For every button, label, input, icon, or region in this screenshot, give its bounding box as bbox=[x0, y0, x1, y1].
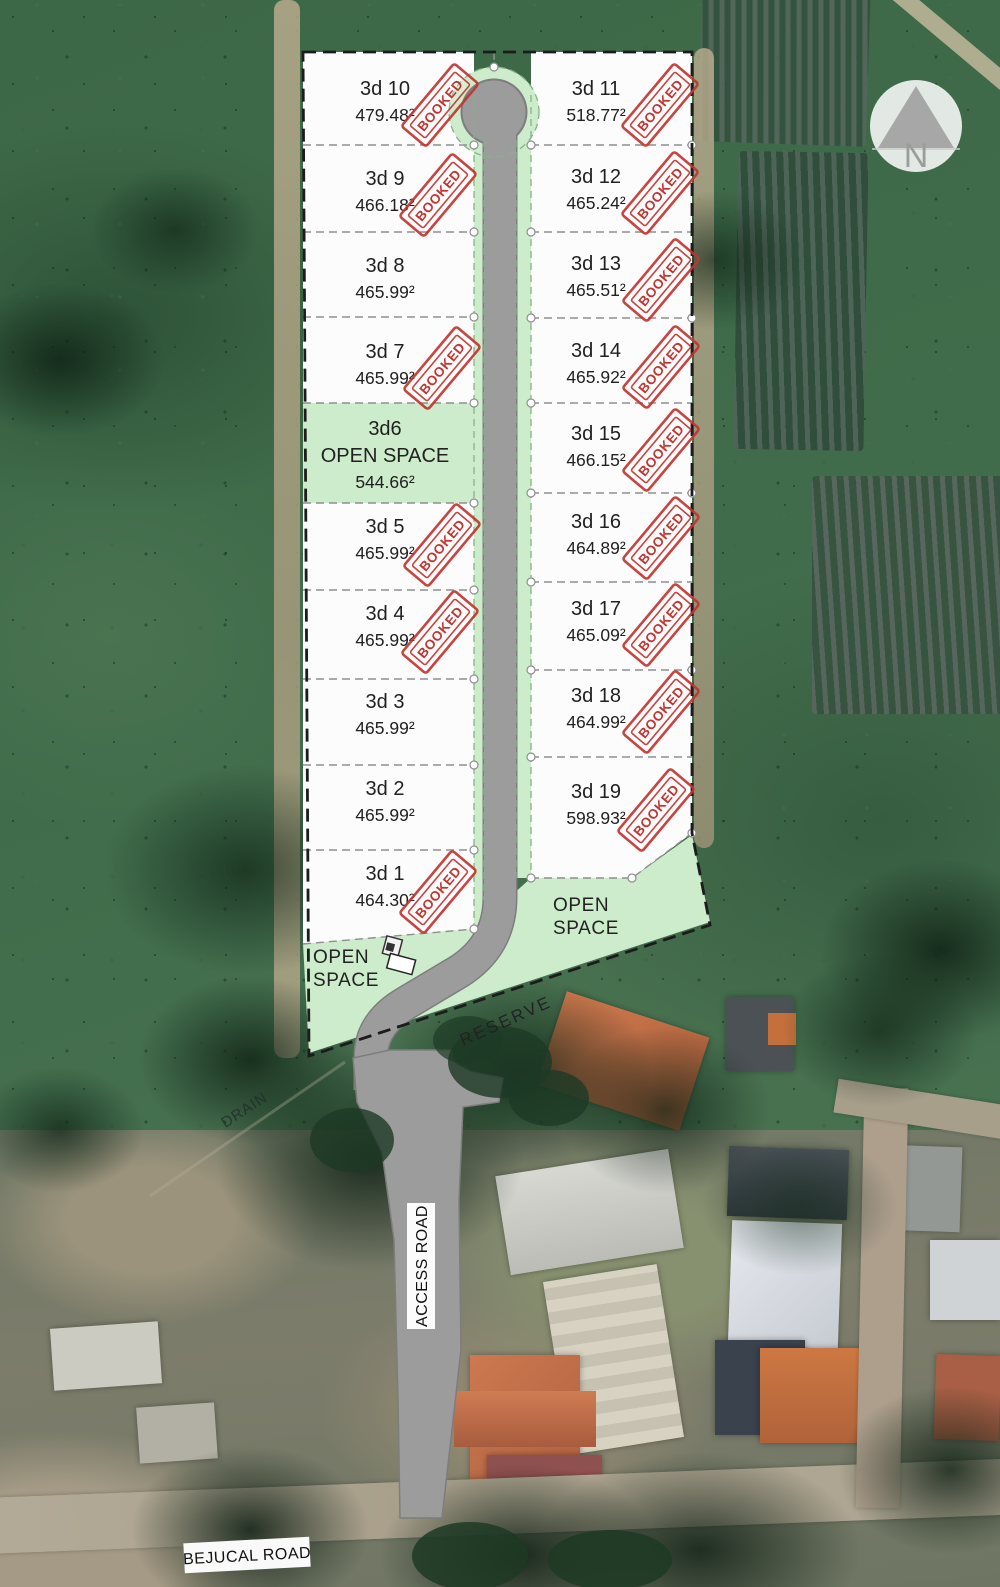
svg-text:3d 16: 3d 16 bbox=[571, 511, 621, 533]
svg-text:3d 7: 3d 7 bbox=[366, 341, 405, 363]
access-road-label: ACCESS ROAD bbox=[407, 1203, 435, 1329]
svg-text:464.89²: 464.89² bbox=[566, 538, 626, 558]
svg-text:465.99²: 465.99² bbox=[355, 718, 415, 738]
svg-text:3d 12: 3d 12 bbox=[571, 166, 621, 188]
svg-text:3d 18: 3d 18 bbox=[571, 685, 621, 707]
svg-text:544.66²: 544.66² bbox=[355, 472, 415, 492]
svg-text:3d6: 3d6 bbox=[368, 418, 401, 440]
svg-text:465.09²: 465.09² bbox=[566, 625, 626, 645]
svg-text:3d 11: 3d 11 bbox=[572, 78, 621, 100]
svg-text:598.93²: 598.93² bbox=[566, 808, 626, 828]
svg-text:3d 14: 3d 14 bbox=[571, 340, 621, 362]
drain-label: DRAIN bbox=[218, 1089, 271, 1131]
svg-text:3d 4: 3d 4 bbox=[366, 603, 405, 625]
svg-text:OPEN: OPEN bbox=[553, 895, 609, 916]
svg-text:SPACE: SPACE bbox=[553, 918, 619, 939]
svg-text:466.18²: 466.18² bbox=[355, 195, 415, 215]
svg-text:3d 19: 3d 19 bbox=[571, 781, 621, 803]
svg-text:3d 8: 3d 8 bbox=[366, 255, 405, 277]
north-compass: N bbox=[870, 80, 962, 175]
svg-text:3d 2: 3d 2 bbox=[366, 778, 405, 800]
compass-n-label: N bbox=[904, 137, 929, 175]
svg-text:OPEN SPACE: OPEN SPACE bbox=[321, 445, 450, 467]
svg-text:465.99²: 465.99² bbox=[355, 282, 415, 302]
svg-text:3d 5: 3d 5 bbox=[366, 516, 405, 538]
site-plan-screenshot: 3d 10 479.48² 3d 9 466.18² 3d 8 465.99² … bbox=[0, 0, 1000, 1587]
svg-text:3d 10: 3d 10 bbox=[360, 78, 410, 100]
bejucal-road-label: BEJUCAL ROAD bbox=[182, 1537, 312, 1574]
svg-text:3d 13: 3d 13 bbox=[571, 253, 621, 275]
svg-text:3d 3: 3d 3 bbox=[366, 691, 405, 713]
svg-text:465.99²: 465.99² bbox=[355, 543, 415, 563]
svg-text:466.15²: 466.15² bbox=[566, 450, 626, 470]
svg-text:464.99²: 464.99² bbox=[566, 712, 626, 732]
svg-text:3d 9: 3d 9 bbox=[366, 168, 405, 190]
subdivision-plan-overlay: 3d 10 479.48² 3d 9 466.18² 3d 8 465.99² … bbox=[0, 0, 1000, 1587]
svg-text:518.77²: 518.77² bbox=[566, 105, 626, 125]
svg-text:ACCESS ROAD: ACCESS ROAD bbox=[414, 1205, 431, 1327]
svg-text:OPEN: OPEN bbox=[313, 947, 369, 968]
svg-text:465.51²: 465.51² bbox=[566, 280, 626, 300]
svg-text:465.99²: 465.99² bbox=[355, 805, 415, 825]
svg-text:3d 17: 3d 17 bbox=[571, 598, 621, 620]
svg-text:3d 15: 3d 15 bbox=[571, 423, 621, 445]
svg-text:SPACE: SPACE bbox=[313, 970, 379, 991]
svg-text:465.92²: 465.92² bbox=[566, 367, 626, 387]
svg-text:3d 1: 3d 1 bbox=[366, 863, 405, 885]
svg-text:465.24²: 465.24² bbox=[566, 193, 626, 213]
